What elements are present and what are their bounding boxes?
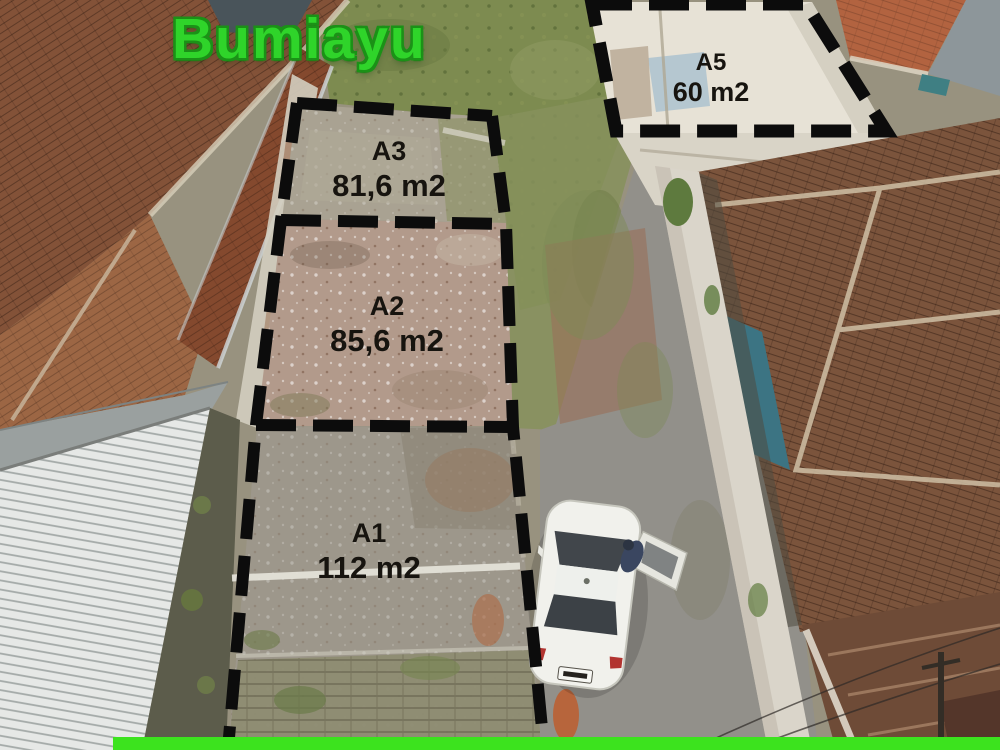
plot-a1-area: 112 m2 bbox=[317, 550, 420, 587]
plot-a5-id: A5 bbox=[673, 49, 750, 77]
land-plot-aerial-ad: Bumiayu A3 81,6 m2 A2 85,6 m2 A1 112 m2 … bbox=[0, 0, 1000, 750]
plot-a1-id: A1 bbox=[317, 518, 420, 550]
plot-a3-label: A3 81,6 m2 bbox=[332, 136, 446, 204]
plot-a3-id: A3 bbox=[332, 136, 446, 168]
plot-a5-area: 60 m2 bbox=[673, 77, 750, 109]
footer-green-bar bbox=[113, 737, 1000, 750]
location-title: Bumiayu bbox=[172, 6, 427, 72]
wall-bush bbox=[663, 178, 693, 226]
plot-a5-label: A5 60 m2 bbox=[673, 49, 750, 109]
plot-a2-area: 85,6 m2 bbox=[330, 323, 444, 360]
plot-a3-area: 81,6 m2 bbox=[332, 168, 446, 205]
car-taillight-right bbox=[608, 656, 622, 669]
plot-a1-label: A1 112 m2 bbox=[317, 518, 420, 586]
plot-a2-label: A2 85,6 m2 bbox=[330, 291, 444, 359]
plot-a2-id: A2 bbox=[330, 291, 444, 323]
aerial-photo bbox=[0, 0, 1000, 750]
plot-a1-ground bbox=[228, 426, 542, 750]
utility-pole bbox=[938, 652, 944, 750]
